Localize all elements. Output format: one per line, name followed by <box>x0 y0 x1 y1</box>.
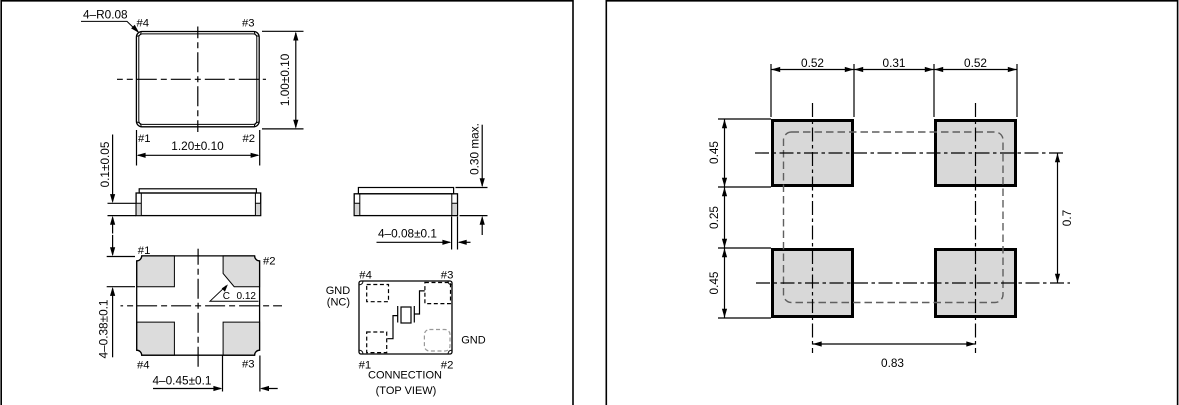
svg-text:CONNECTION: CONNECTION <box>368 369 442 381</box>
svg-text:#3: #3 <box>242 18 255 30</box>
svg-text:0.25: 0.25 <box>707 206 721 229</box>
svg-text:0.7: 0.7 <box>1060 210 1074 226</box>
svg-text:4–R0.08: 4–R0.08 <box>83 7 128 21</box>
svg-text:#4: #4 <box>359 269 372 281</box>
svg-text:(TOP VIEW): (TOP VIEW) <box>376 385 437 397</box>
svg-text:0.1±0.05: 0.1±0.05 <box>98 141 112 187</box>
svg-text:4–0.08±0.1: 4–0.08±0.1 <box>378 227 437 241</box>
svg-text:4–0.38±0.1: 4–0.38±0.1 <box>97 300 111 359</box>
svg-text:0.45: 0.45 <box>707 141 721 164</box>
svg-text:#3: #3 <box>441 269 454 281</box>
svg-text:0.45: 0.45 <box>707 271 721 294</box>
svg-text:#1: #1 <box>138 245 151 257</box>
svg-text:0.12: 0.12 <box>237 291 257 302</box>
svg-text:(NC): (NC) <box>327 296 350 308</box>
svg-text:1.20±0.10: 1.20±0.10 <box>171 139 224 153</box>
svg-text:GND: GND <box>326 285 351 297</box>
svg-text:#2: #2 <box>243 133 256 145</box>
svg-text:4–0.45±0.1: 4–0.45±0.1 <box>153 374 212 388</box>
svg-text:1.00±0.10: 1.00±0.10 <box>278 53 292 106</box>
svg-text:#1: #1 <box>138 133 151 145</box>
svg-text:C: C <box>223 291 230 302</box>
svg-text:0.30 max.: 0.30 max. <box>467 123 481 175</box>
svg-text:#2: #2 <box>441 360 454 372</box>
svg-text:#4: #4 <box>137 18 150 30</box>
svg-text:0.52: 0.52 <box>801 56 824 70</box>
svg-text:GND: GND <box>461 335 486 347</box>
svg-text:#2: #2 <box>263 256 276 268</box>
svg-text:0.52: 0.52 <box>964 56 987 70</box>
svg-text:0.31: 0.31 <box>883 56 906 70</box>
svg-text:#3: #3 <box>242 358 255 370</box>
svg-text:#4: #4 <box>137 359 150 371</box>
svg-text:0.83: 0.83 <box>881 356 904 370</box>
